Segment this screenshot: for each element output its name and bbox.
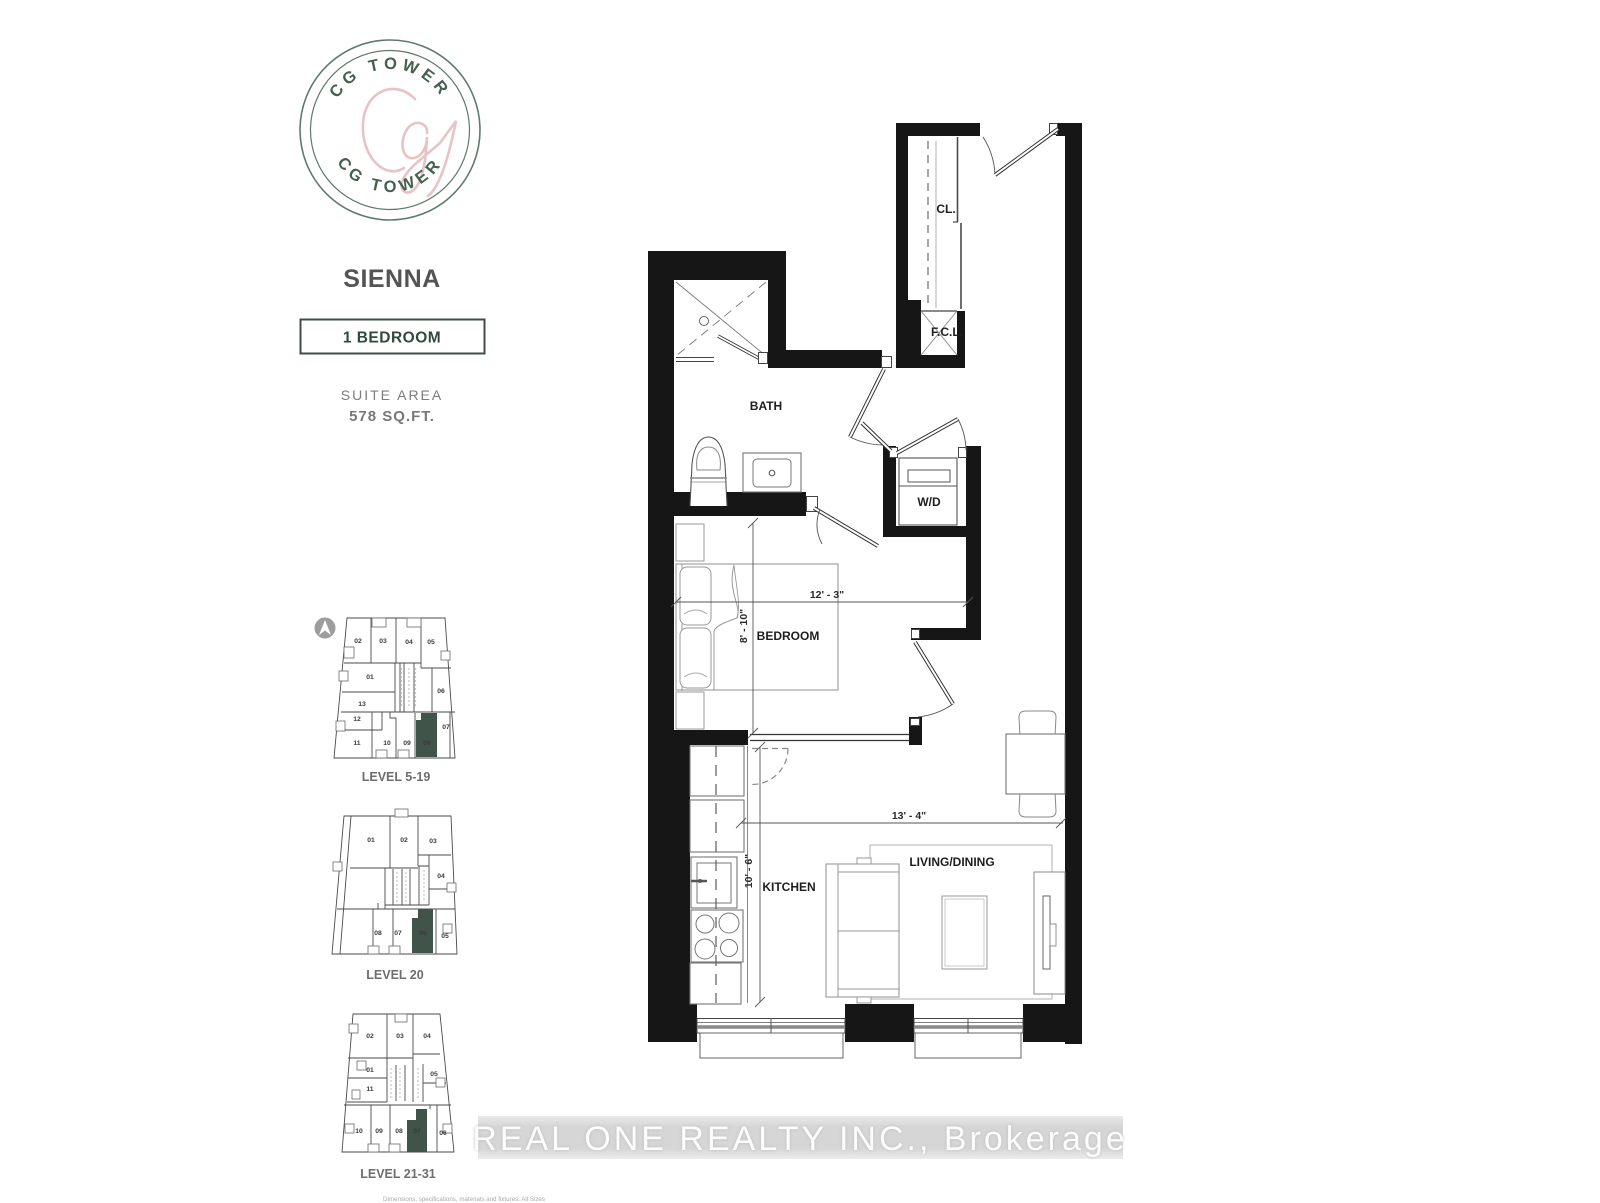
svg-text:09: 09 (375, 1128, 383, 1135)
svg-text:02: 02 (400, 837, 408, 844)
svg-text:13' - 4": 13' - 4" (892, 810, 926, 822)
svg-text:13: 13 (358, 701, 366, 708)
svg-text:11: 11 (366, 1086, 373, 1093)
svg-text:F.C.L.: F.C.L. (931, 325, 963, 339)
svg-text:04: 04 (437, 873, 445, 880)
svg-text:BATH: BATH (750, 399, 782, 413)
svg-text:11: 11 (353, 740, 360, 747)
svg-text:12: 12 (353, 716, 361, 723)
svg-text:08: 08 (395, 1128, 403, 1135)
svg-text:LEVEL 20: LEVEL 20 (366, 968, 423, 982)
svg-text:10: 10 (383, 740, 391, 747)
svg-text:578 SQ.FT.: 578 SQ.FT. (349, 408, 435, 425)
svg-text:01: 01 (366, 674, 374, 681)
svg-text:W/D: W/D (917, 495, 941, 509)
svg-text:07: 07 (442, 724, 450, 731)
svg-text:12' - 3": 12' - 3" (810, 589, 844, 601)
svg-text:LEVEL 5-19: LEVEL 5-19 (362, 770, 431, 784)
svg-text:06: 06 (419, 930, 427, 937)
svg-text:06: 06 (437, 688, 445, 695)
svg-text:BEDROOM: BEDROOM (757, 629, 820, 643)
svg-text:08: 08 (423, 740, 431, 747)
svg-text:Dimensions, specifications, ma: Dimensions, specifications, materials an… (383, 1196, 545, 1203)
svg-text:05: 05 (441, 933, 449, 940)
svg-text:REAL ONE REALTY INC., Brokerag: REAL ONE REALTY INC., Brokerage (472, 1120, 1127, 1158)
svg-text:05: 05 (430, 1071, 438, 1078)
svg-text:LIVING/DINING: LIVING/DINING (909, 855, 994, 869)
svg-text:06: 06 (439, 1130, 447, 1137)
svg-text:8' - 10": 8' - 10" (738, 609, 750, 643)
svg-text:03: 03 (429, 838, 437, 845)
svg-text:LEVEL 21-31: LEVEL 21-31 (360, 1167, 436, 1181)
svg-text:03: 03 (396, 1033, 404, 1040)
svg-text:02: 02 (366, 1033, 374, 1040)
svg-text:SIENNA: SIENNA (343, 265, 440, 293)
svg-text:10: 10 (355, 1128, 363, 1135)
svg-text:03: 03 (379, 638, 387, 645)
svg-text:09: 09 (403, 740, 411, 747)
svg-text:KITCHEN: KITCHEN (762, 880, 815, 894)
svg-text:01: 01 (366, 1067, 374, 1074)
svg-text:SUITE AREA: SUITE AREA (341, 387, 443, 403)
svg-text:CL.: CL. (936, 202, 955, 216)
svg-text:1 BEDROOM: 1 BEDROOM (343, 330, 441, 347)
svg-text:01: 01 (367, 837, 375, 844)
svg-text:07: 07 (413, 1128, 421, 1135)
svg-text:04: 04 (405, 639, 413, 646)
svg-text:05: 05 (427, 639, 435, 646)
svg-text:02: 02 (354, 638, 362, 645)
svg-text:10' - 6": 10' - 6" (743, 854, 755, 888)
svg-text:08: 08 (374, 930, 382, 937)
svg-text:04: 04 (423, 1033, 431, 1040)
svg-text:07: 07 (394, 930, 402, 937)
